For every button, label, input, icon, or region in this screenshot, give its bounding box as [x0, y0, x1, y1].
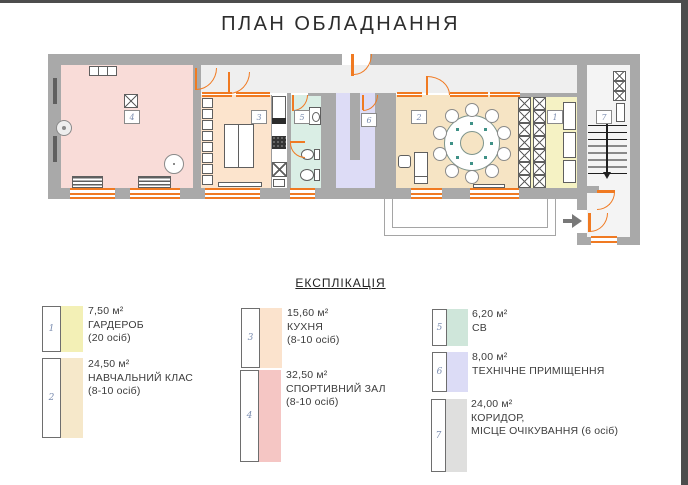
legend-swatch: [61, 358, 83, 438]
wall: [370, 54, 630, 65]
kitchen-island-divider: [238, 125, 239, 167]
legend-area: 8,00 м²: [472, 351, 605, 365]
chair: [485, 164, 499, 178]
window-radiator: [411, 188, 442, 201]
locker: [613, 71, 626, 81]
room-label-7: 7: [596, 110, 612, 124]
stair-direction-arrow: [603, 172, 611, 179]
locker: [518, 149, 531, 162]
desk-divider: [415, 176, 427, 177]
locker: [533, 110, 546, 123]
chair: [433, 126, 447, 140]
room-label-1: 1: [547, 110, 563, 124]
sink-unit: [272, 162, 287, 177]
table-joint: [450, 142, 453, 145]
stove: [272, 136, 286, 149]
table-joint: [484, 128, 487, 131]
legend-swatch: [260, 308, 282, 368]
legend-room-name: СВ: [472, 322, 507, 336]
locker: [533, 162, 546, 175]
locker: [533, 123, 546, 136]
locker: [613, 81, 626, 91]
window-radiator: [130, 188, 180, 201]
legend-number-box: 4: [240, 370, 259, 462]
window-radiator: [205, 188, 260, 201]
page-border-right: [681, 0, 688, 485]
wall: [308, 93, 321, 96]
legend-item-text: 32,50 м² СПОРТИВНИЙ ЗАЛ (8-10 осіб): [286, 369, 386, 410]
entrance-arrow-icon: [563, 219, 572, 223]
kitchen-island-table: [224, 124, 254, 168]
locker: [533, 175, 546, 188]
legend-capacity: (8-10 осіб): [287, 334, 340, 348]
legend-room-name: КУХНЯ: [287, 321, 340, 335]
entrance-arrow-head: [572, 214, 582, 228]
legend-number-box: 2: [42, 358, 61, 438]
locker: [518, 175, 531, 188]
toilet-bowl: [300, 169, 314, 181]
counter-cabinet: [273, 179, 285, 187]
wall: [617, 237, 640, 245]
legend-swatch: [447, 352, 468, 392]
table-joint: [470, 162, 473, 165]
window-radiator: [70, 188, 115, 201]
locker: [518, 136, 531, 149]
legend-heading: ЕКСПЛІКАЦІЯ: [0, 276, 681, 290]
legend-swatch: [447, 309, 468, 346]
wall: [375, 93, 396, 188]
room-label-3: 3: [251, 110, 267, 124]
chair: [497, 147, 511, 161]
counter: [450, 92, 488, 97]
chair: [465, 170, 479, 184]
table-joint: [484, 156, 487, 159]
chair: [433, 147, 447, 161]
wall-window-pier: [53, 78, 57, 104]
table-joint: [470, 122, 473, 125]
legend-room-name: ТЕХНІЧНЕ ПРИМІЩЕННЯ: [472, 365, 605, 379]
desk-chair: [398, 155, 411, 168]
table-joint: [456, 128, 459, 131]
legend-number-box: 3: [241, 308, 260, 368]
legend-area: 24,00 м²: [471, 398, 618, 412]
terrace-outline-inner: [392, 199, 548, 228]
wall-window-pier: [53, 136, 57, 162]
legend-area: 15,60 м²: [287, 307, 340, 321]
legend-number-box: 6: [432, 352, 447, 392]
legend-capacity: (8-10 осіб): [286, 396, 386, 410]
chair: [445, 164, 459, 178]
wardrobe-cabinet: [563, 160, 576, 183]
locker: [518, 162, 531, 175]
legend-number-box: 7: [431, 399, 446, 472]
teacher-desk: [414, 152, 428, 184]
kitchen-chair: [202, 164, 213, 174]
legend-area: 7,50 м²: [88, 305, 144, 319]
wardrobe-cabinet: [563, 132, 576, 158]
chair: [485, 109, 499, 123]
wall: [321, 93, 336, 188]
legend-number-box: 1: [42, 306, 61, 352]
legend-swatch: [61, 306, 83, 352]
classroom-side-table: [473, 184, 505, 188]
wardrobe-cabinet: [563, 102, 576, 130]
legend-swatch: [446, 399, 467, 472]
locker: [518, 110, 531, 123]
punching-bag-dot: [173, 163, 175, 165]
kitchen-chair: [202, 142, 213, 152]
legend-capacity: (8-10 осіб): [88, 385, 193, 399]
gym-wall-bars: [72, 176, 103, 188]
shelf-unit: [89, 66, 117, 76]
chair: [445, 109, 459, 123]
page-title: ПЛАН ОБЛАДНАННЯ: [0, 13, 681, 36]
gym-wall-bars: [138, 176, 171, 188]
locker: [518, 123, 531, 136]
legend-item-text: 6,20 м² СВ: [472, 308, 507, 335]
legend-item-text: 8,00 м² ТЕХНІЧНЕ ПРИМІЩЕННЯ: [472, 351, 605, 378]
corridor-strip: [200, 65, 630, 93]
page-border-top: [0, 0, 688, 3]
counter: [397, 92, 422, 97]
chair: [497, 126, 511, 140]
stair-stringer: [606, 121, 608, 173]
chair: [465, 103, 479, 117]
kitchen-chair: [202, 153, 213, 163]
kitchen-chair: [202, 131, 213, 141]
room-label-2: 2: [411, 110, 427, 124]
legend-room-name: ГАРДЕРОБ: [88, 319, 144, 333]
floor-plan-page: ПЛАН ОБЛАДНАННЯ: [0, 0, 688, 485]
legend-area: 24,50 м²: [88, 358, 193, 372]
window-radiator: [290, 188, 315, 201]
legend-capacity: (20 осіб): [88, 332, 144, 346]
wall-target-dot: [62, 126, 66, 130]
locker: [533, 149, 546, 162]
locker: [518, 97, 531, 110]
legend-room-name: КОРИДОР,: [471, 412, 618, 426]
locker: [533, 136, 546, 149]
room-label-6: 6: [361, 113, 377, 127]
wall: [48, 54, 342, 65]
wall: [577, 237, 591, 245]
legend-room-name: СПОРТИВНИЙ ЗАЛ: [286, 383, 386, 397]
ring-table-inner: [460, 131, 484, 155]
shelf-divider: [107, 67, 108, 75]
table-joint: [456, 156, 459, 159]
window-radiator: [470, 188, 519, 201]
staircase: [588, 125, 627, 174]
counter: [236, 92, 270, 97]
legend-number-box: 5: [432, 309, 447, 346]
locker: [613, 91, 626, 101]
wall: [630, 54, 640, 245]
shelf-divider: [98, 67, 99, 75]
kitchen-chair: [202, 98, 213, 108]
table-joint: [490, 142, 493, 145]
wall: [350, 93, 360, 160]
legend-room-name: НАВЧАЛЬНИЙ КЛАС: [88, 372, 193, 386]
toilet-tank: [314, 169, 320, 181]
legend-area: 6,20 м²: [472, 308, 507, 322]
room-label-5: 5: [294, 110, 310, 124]
legend-item-text: 24,50 м² НАВЧАЛЬНИЙ КЛАС (8-10 осіб): [88, 358, 193, 399]
kitchen-chair: [202, 175, 213, 185]
legend-capacity: МІСЦЕ ОЧІКУВАННЯ (6 осіб): [471, 425, 618, 439]
sink-bowl: [312, 112, 320, 122]
legend-item-text: 24,00 м² КОРИДОР, МІСЦЕ ОЧІКУВАННЯ (6 ос…: [471, 398, 618, 439]
legend-item-text: 15,60 м² КУХНЯ (8-10 осіб): [287, 307, 340, 348]
legend-item-text: 7,50 м² ГАРДЕРОБ (20 осіб): [88, 305, 144, 346]
entrance-threshold: [591, 236, 617, 244]
kitchen-side-table: [218, 182, 262, 187]
hall-cabinet: [616, 103, 625, 122]
kitchen-chair: [202, 109, 213, 119]
room-label-4: 4: [124, 110, 140, 124]
toilet-tank: [314, 149, 320, 160]
kitchen-chair: [202, 120, 213, 130]
counter-appliance: [272, 118, 286, 124]
equipment-box: [124, 94, 138, 108]
locker: [533, 97, 546, 110]
legend-area: 32,50 м²: [286, 369, 386, 383]
wall: [577, 65, 587, 210]
counter: [490, 92, 520, 97]
legend-swatch: [259, 370, 281, 462]
